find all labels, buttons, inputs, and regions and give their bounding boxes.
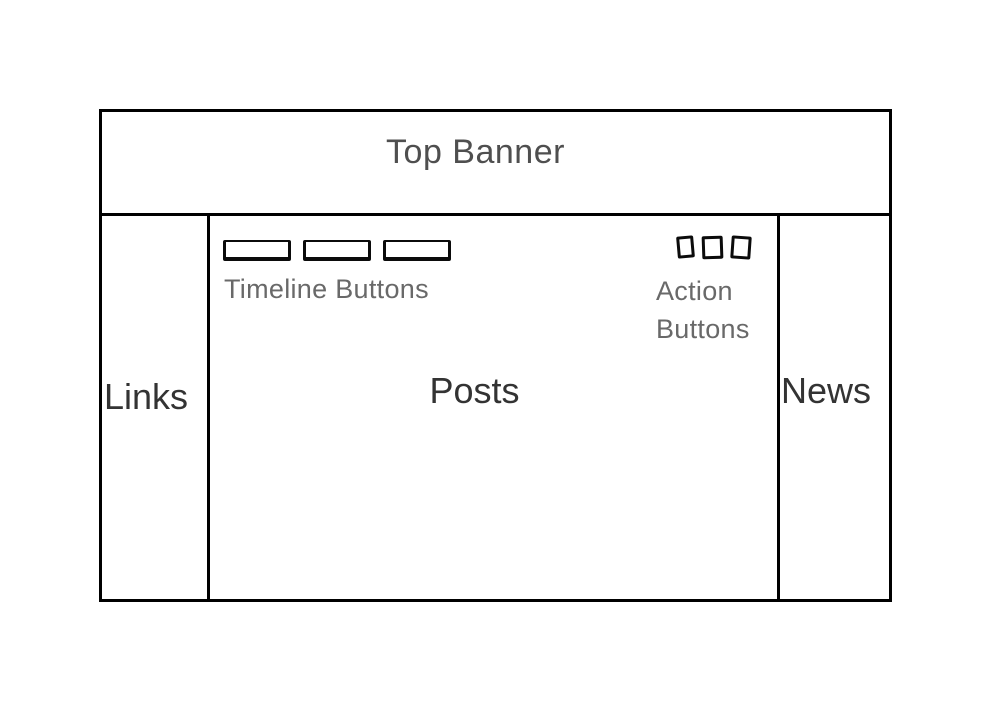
action-button-2[interactable] [702, 236, 724, 260]
links-label: Links [104, 376, 188, 418]
page-body: Links Timeline Buttons Action Buttons Po… [102, 216, 889, 599]
action-buttons-caption: Action Buttons [656, 272, 774, 348]
timeline-buttons-caption: Timeline Buttons [224, 274, 429, 305]
action-button-1[interactable] [676, 235, 695, 258]
posts-label: Posts [191, 370, 758, 412]
timeline-buttons-group [223, 240, 451, 261]
news-sidebar: News [780, 216, 889, 599]
news-label: News [781, 370, 871, 412]
action-button-3[interactable] [730, 235, 752, 259]
timeline-button-1[interactable] [223, 240, 291, 261]
wireframe-canvas: Top Banner Links Timeline Buttons Acti [0, 0, 1000, 713]
top-banner-label: Top Banner [386, 133, 565, 172]
timeline-button-3[interactable] [383, 240, 451, 261]
page-frame: Top Banner Links Timeline Buttons Acti [99, 109, 892, 602]
timeline-button-2[interactable] [303, 240, 371, 261]
action-buttons-group [677, 236, 751, 259]
top-banner: Top Banner [102, 112, 889, 216]
posts-area: Timeline Buttons Action Buttons Posts [210, 216, 780, 599]
